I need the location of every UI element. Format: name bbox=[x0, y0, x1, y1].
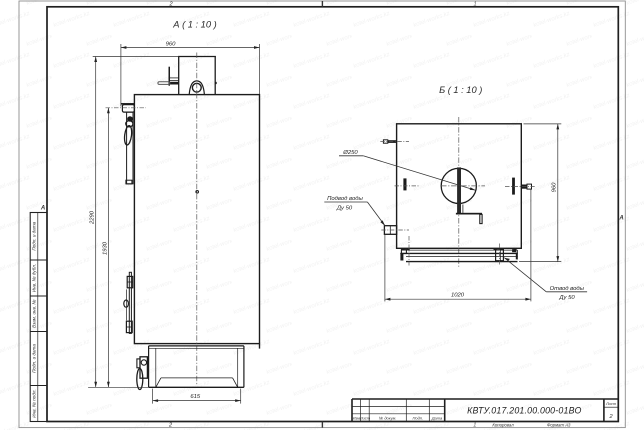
svg-text:Подвод воды: Подвод воды bbox=[327, 196, 363, 202]
svg-text:А ( 1 : 10 ): А ( 1 : 10 ) bbox=[172, 20, 216, 30]
svg-text:Подп. и дата: Подп. и дата bbox=[31, 344, 36, 373]
svg-text:Дата: Дата bbox=[431, 415, 443, 420]
svg-text:Ø250: Ø250 bbox=[342, 150, 358, 156]
svg-text:Ду 50: Ду 50 bbox=[336, 206, 353, 212]
svg-text:1: 1 bbox=[473, 2, 476, 8]
svg-text:Лист: Лист bbox=[359, 415, 371, 420]
svg-text:1020: 1020 bbox=[451, 293, 465, 299]
svg-text:615: 615 bbox=[190, 394, 201, 400]
svg-text:Копировал: Копировал bbox=[492, 423, 514, 428]
svg-text:2290: 2290 bbox=[90, 210, 96, 225]
svg-text:Инв. № дубл.: Инв. № дубл. bbox=[31, 264, 36, 292]
svg-text:960: 960 bbox=[166, 42, 177, 48]
svg-text:Подп. и дата: Подп. и дата bbox=[31, 221, 36, 250]
svg-text:Подп.: Подп. bbox=[412, 415, 423, 420]
svg-text:960: 960 bbox=[551, 182, 557, 193]
svg-text:1930: 1930 bbox=[102, 241, 108, 255]
svg-text:А: А bbox=[618, 216, 623, 222]
svg-text:Б ( 1 : 10 ): Б ( 1 : 10 ) bbox=[439, 85, 482, 95]
svg-text:А: А bbox=[40, 206, 45, 212]
svg-text:Лист: Лист bbox=[605, 401, 617, 406]
svg-text:№ докум.: № докум. bbox=[379, 415, 397, 420]
svg-text:Взам. инв. №: Взам. инв. № bbox=[31, 299, 36, 327]
svg-text:1: 1 bbox=[473, 423, 476, 429]
svg-text:Отвод воды: Отвод воды bbox=[550, 286, 585, 292]
svg-text:КВТУ.017.201.00.000-01ВО: КВТУ.017.201.00.000-01ВО bbox=[467, 406, 581, 416]
svg-text:Ду 50: Ду 50 bbox=[558, 295, 575, 301]
svg-text:Формат А3: Формат А3 bbox=[547, 423, 571, 428]
svg-text:Инв. № подл.: Инв. № подл. bbox=[31, 389, 36, 418]
